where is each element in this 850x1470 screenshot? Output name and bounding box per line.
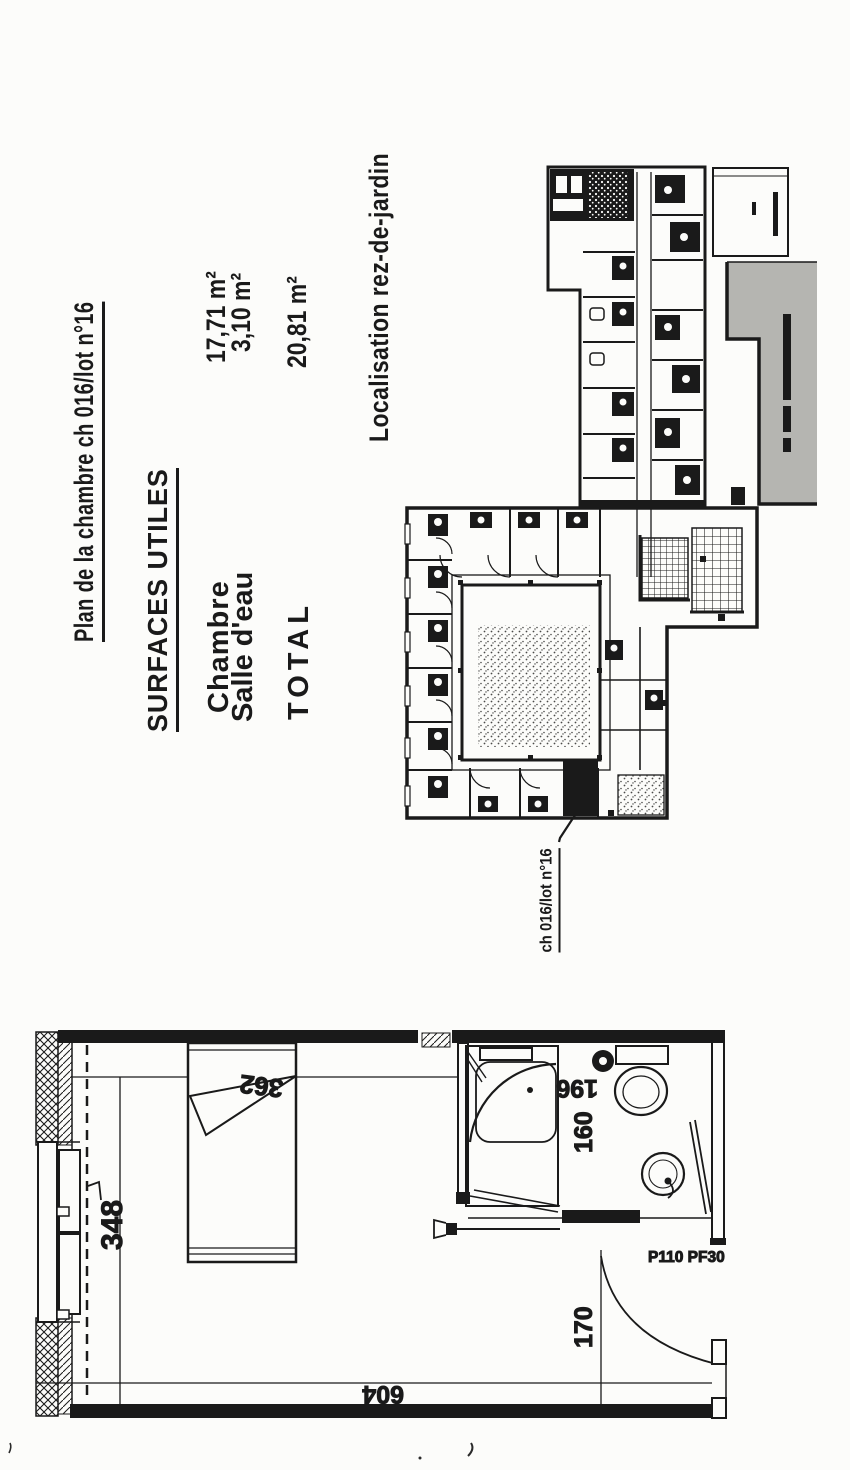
door-swing-arc xyxy=(601,1256,716,1364)
surface-row-label-total: TOTAL xyxy=(285,601,314,720)
dim-604: 604 xyxy=(362,1380,404,1408)
dim-196: 196 xyxy=(556,1074,598,1102)
scanned-plan-sheet: 348 362 196 160 170 604 P110 PF30 Plan d… xyxy=(0,0,850,1470)
room-plan: 348 362 196 160 170 604 P110 PF30 xyxy=(36,1030,726,1418)
dim-348: 348 xyxy=(96,1200,129,1250)
dim-170: 170 xyxy=(570,1306,598,1348)
surface-row-value-total: 20,81 m² xyxy=(284,276,311,368)
scan-artifacts xyxy=(9,1443,472,1460)
door-spec-label: P110 PF30 xyxy=(648,1249,725,1266)
shower-curtain-arc xyxy=(470,1064,556,1142)
annex-stipple-room xyxy=(618,775,664,815)
room-callout-label: ch 016/lot n°16 xyxy=(539,848,561,952)
stairs-2 xyxy=(692,528,742,612)
page-title: Plan de la chambre ch 016/lot n°16 xyxy=(71,302,105,642)
localisation-heading: Localisation rez-de-jardin xyxy=(366,153,393,442)
courtyard-stipple xyxy=(478,625,590,747)
handle-flag xyxy=(434,1220,560,1238)
upper-right-block xyxy=(713,168,788,256)
washbasin xyxy=(642,1120,711,1214)
stairs-1 xyxy=(642,538,688,598)
localisation-plan xyxy=(405,167,817,842)
main-block xyxy=(405,508,757,818)
terrace-area xyxy=(727,262,817,505)
surface-row-label-salle-deau: Salle d'eau xyxy=(229,572,258,722)
bath-door-leaf xyxy=(562,1210,640,1223)
toilet xyxy=(592,1046,668,1115)
dim-348-tick xyxy=(88,1182,101,1200)
dim-362: 362 xyxy=(238,1069,285,1104)
shower xyxy=(466,1046,560,1212)
north-wing xyxy=(548,167,705,509)
entrance-door xyxy=(601,1256,726,1418)
floor-plans-graphic: 348 362 196 160 170 604 P110 PF30 xyxy=(0,0,850,1470)
dim-160: 160 xyxy=(570,1111,598,1153)
shower-door xyxy=(470,1190,560,1212)
surfaces-heading: SURFACES UTILES xyxy=(144,468,179,732)
room-ch016-highlight xyxy=(563,760,598,816)
window xyxy=(36,1142,80,1322)
surface-row-value-salle-deau: 3,10 m² xyxy=(228,273,255,352)
